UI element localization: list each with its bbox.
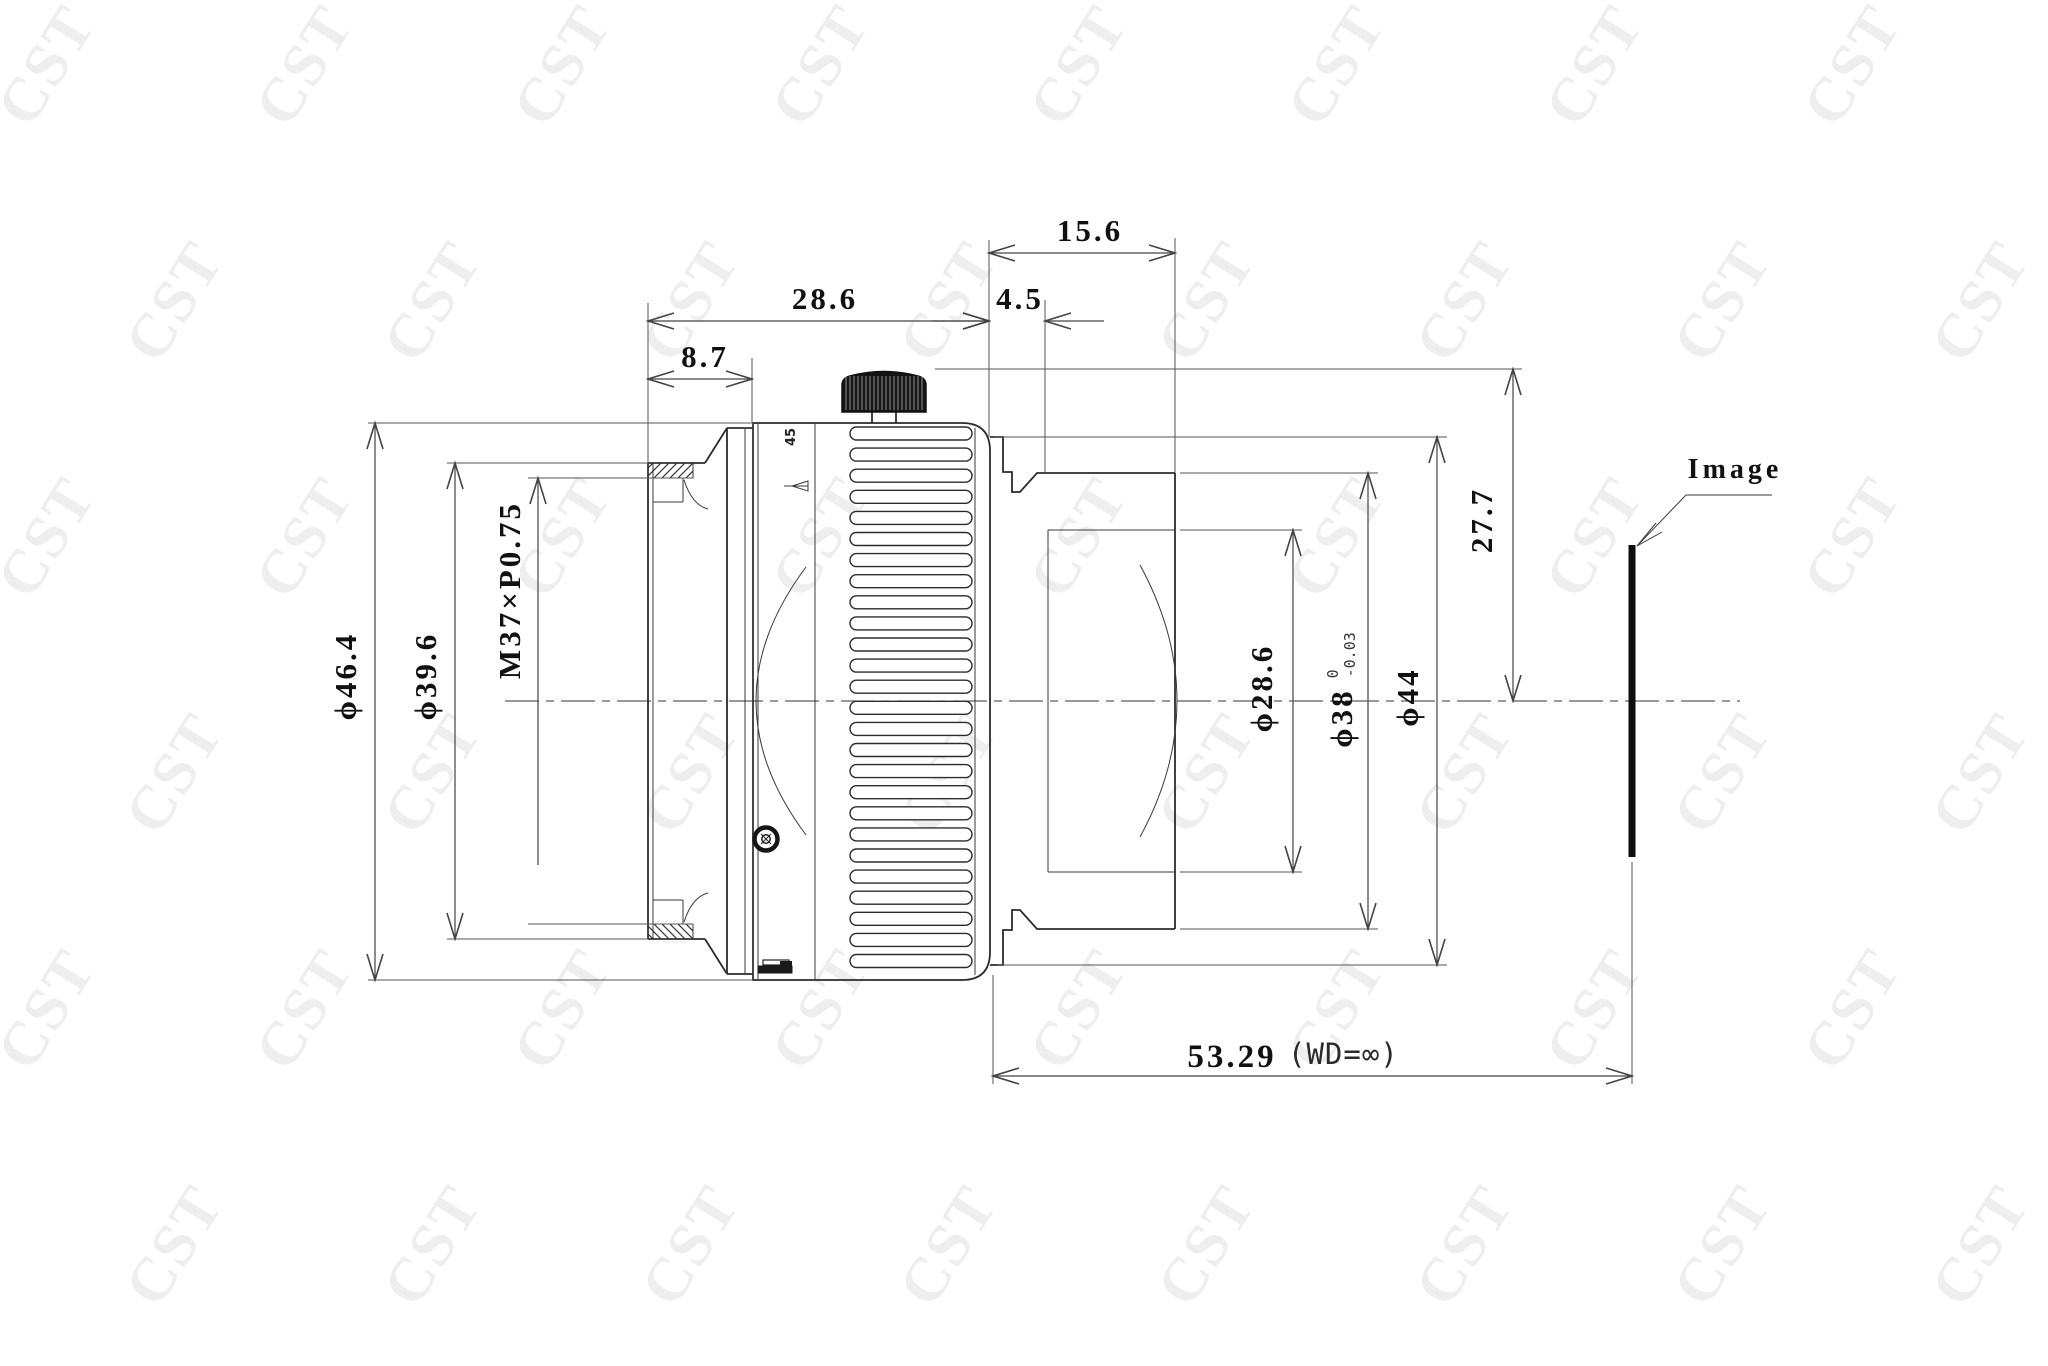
watermark-text: CST [628,702,753,845]
watermark-text: CST [1918,702,2043,845]
watermark-text: CST [1016,466,1141,609]
focus-ring-rib [850,912,972,925]
dim-8-7-value: 8.7 [681,339,729,374]
focus-ring-rib [850,659,972,672]
watermark-text: CST [758,0,883,137]
watermark-text: CST [112,230,237,373]
focus-ring-rib [850,427,972,440]
dim-15-6-value: 15.6 [1057,213,1123,248]
svg-text:ϕ38 0 -0.03: ϕ38 0 -0.03 [1324,632,1359,748]
focus-ring-rib [850,448,972,461]
dim-dia-28-6-value: ϕ28.6 [1244,644,1279,733]
watermark-text: CST [1016,0,1141,137]
watermark-text: CST [1016,938,1141,1081]
watermark-text: CST [500,0,625,137]
watermark-text: CST [1144,230,1269,373]
dim-dia-39-6: ϕ39.6 [408,463,455,939]
focus-ring-rib [850,786,972,799]
focus-ring-rib [850,701,972,714]
image-leader-line [1637,495,1772,546]
dim-dia-44-value: ϕ44 [1390,667,1425,726]
lens-technical-drawing-page: CSTCSTCSTCSTCSTCSTCSTCSTCSTCSTCSTCSTCSTC… [0,0,2048,1366]
dim-dia-38-value: ϕ38 [1324,688,1359,747]
watermark-text: CST [1660,1174,1785,1317]
focus-ring-rib [850,870,972,883]
focus-ring-rib [850,575,972,588]
watermark-text: CST [1532,466,1657,609]
dim-28-6-value: 28.6 [792,281,858,316]
dim-53-29-value: 53.29 [1187,1039,1276,1075]
watermark-text: CST [1532,0,1657,137]
watermark-text: CST [1274,0,1399,137]
focus-ring-rib [850,490,972,503]
focus-ring-rib [850,596,972,609]
focus-ring-rib [850,469,972,482]
focus-ring-rib [850,617,972,630]
watermark-text: CST [886,230,1011,373]
dim-dia-39-6-value: ϕ39.6 [408,632,443,721]
watermark-text: CST [628,1174,753,1317]
watermark-text: CST [1402,230,1527,373]
focus-ring-rib [850,891,972,904]
focus-ring-rib [850,511,972,524]
thumbscrew-knob [842,372,926,413]
image-plane-label: Image [1688,454,1783,485]
watermark-text: CST [112,702,237,845]
focus-ring-rib [850,933,972,946]
watermark-text: CST [370,702,495,845]
watermark-text: CST [0,466,109,609]
watermark-text: CST [112,1174,237,1317]
watermark-text: CST [1660,702,1785,845]
focus-ring-rib [850,554,972,567]
lens-body: 45 [636,372,1177,981]
focus-ring-rib [850,533,972,546]
focus-ring-rib [850,638,972,651]
dim-filter-thread-value: M37×P0.75 [492,501,527,679]
focus-ring-rib [850,807,972,820]
watermark-text: CST [500,938,625,1081]
hatch-line [636,461,655,480]
dim-27-7: 27.7 [1464,369,1513,701]
focus-ring-rib [850,744,972,757]
focus-index-mark: 45 [784,428,799,446]
watermark-text: CST [1918,230,2043,373]
watermark-text: CST [1660,230,1785,373]
watermark-text: CST [0,0,109,137]
watermark-text: CST [242,0,367,137]
watermark-text: CST [1790,938,1915,1081]
focus-ring-rib [850,680,972,693]
watermark-text: CST [1532,938,1657,1081]
hatch-line [636,922,655,941]
dim-4-5-value: 4.5 [996,281,1044,316]
watermark-text: CST [370,230,495,373]
focus-pointer-mark [784,481,808,491]
bottom-clamp-detail [758,960,792,973]
dim-15-6: 15.6 [989,213,1175,253]
watermark-text: CST [1918,1174,2043,1317]
watermark-text: CST [370,1174,495,1317]
lens-technical-drawing: CSTCSTCSTCSTCSTCSTCSTCSTCSTCSTCSTCSTCSTC… [0,0,2048,1366]
focus-ring-rib [850,849,972,862]
watermark-text: CST [0,938,109,1081]
dim-dia-46-4-value: ϕ46.4 [328,632,363,721]
watermark-layer: CSTCSTCSTCSTCSTCSTCSTCSTCSTCSTCSTCSTCSTC… [0,0,2043,1317]
focus-ring-rib [850,722,972,735]
watermark-text: CST [242,466,367,609]
watermark-text: CST [1790,0,1915,137]
thumbscrew [842,372,926,424]
dim-wd-value: (WD=∞) [1288,1037,1399,1071]
focus-ring-rib [850,955,972,968]
watermark-text: CST [1144,1174,1269,1317]
set-screw [755,828,778,851]
watermark-text: CST [1402,1174,1527,1317]
focus-ring-rib [850,765,972,778]
dim-dia-38-tol-lower: -0.03 [1341,632,1359,677]
focus-ring-rib [850,828,972,841]
dim-27-7-value: 27.7 [1464,487,1499,553]
watermark-text: CST [1790,466,1915,609]
watermark-text: CST [242,938,367,1081]
watermark-text: CST [886,1174,1011,1317]
dim-dia-38-tol-upper: 0 [1324,669,1342,678]
